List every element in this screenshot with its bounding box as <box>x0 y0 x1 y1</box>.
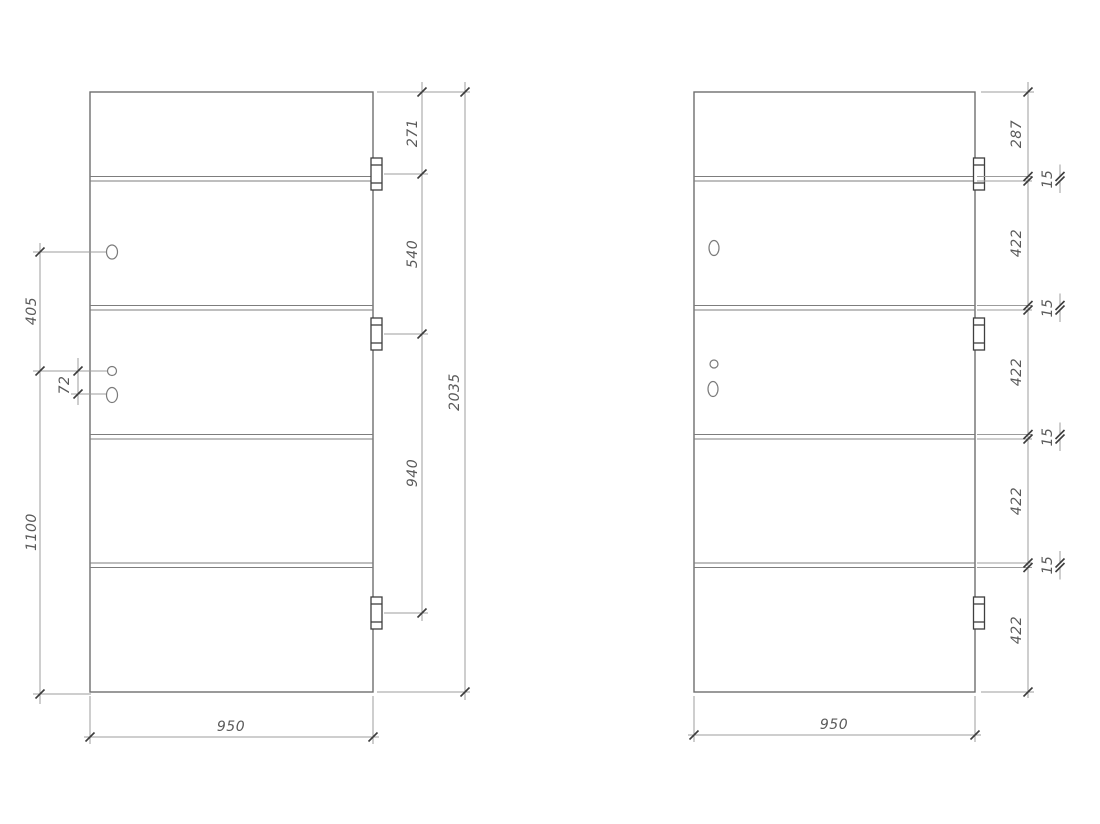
handle-hole-small <box>710 360 718 368</box>
dim-label-950-left: 950 <box>217 719 245 735</box>
dim-label-940: 940 <box>405 459 421 487</box>
hinge-symbol-top <box>974 158 985 190</box>
segment-dimension-chain: 287 15 422 15 422 15 422 15 422 <box>977 82 1065 698</box>
dim-label-271: 271 <box>405 119 421 147</box>
dim-label-15-4: 15 <box>1040 556 1056 575</box>
dim-label-72: 72 <box>57 376 73 395</box>
dim-label-15-3: 15 <box>1040 428 1056 447</box>
hinge-symbol-middle <box>371 318 382 350</box>
hinge-dimension-chain: 271 540 940 <box>377 82 470 621</box>
hinge-symbol-middle <box>974 318 985 350</box>
dim-label-2035: 2035 <box>447 373 463 411</box>
door-panel <box>694 92 975 692</box>
handle-hole-top <box>107 245 118 259</box>
panel-seams <box>694 177 975 568</box>
hole-dimension-chain: 405 72 1100 <box>24 243 107 704</box>
dim-label-1100: 1100 <box>24 513 40 551</box>
dim-label-422-3: 422 <box>1009 487 1025 515</box>
width-dimension-right: 950 <box>688 696 981 742</box>
hinge-symbol-bottom <box>371 597 382 629</box>
dim-label-950-right: 950 <box>820 717 848 733</box>
dim-label-15-1: 15 <box>1040 170 1056 189</box>
handle-hole-bottom <box>107 388 118 403</box>
handle-hole-top <box>709 241 719 256</box>
handle-hole-bottom <box>708 382 718 397</box>
panel-seams <box>90 177 373 568</box>
dim-label-540: 540 <box>405 240 421 268</box>
overall-height-dimension: 2035 <box>377 82 470 700</box>
dim-label-422-2: 422 <box>1009 358 1025 386</box>
dim-label-422-4: 422 <box>1009 616 1025 644</box>
width-dimension-left: 950 <box>84 696 379 744</box>
dim-label-422-1: 422 <box>1009 229 1025 257</box>
door-elevation-left: 405 72 1100 271 540 940 2035 <box>24 82 470 744</box>
handle-hole-small <box>108 367 117 376</box>
hinge-symbol-top <box>371 158 382 190</box>
dim-label-15-2: 15 <box>1040 299 1056 318</box>
gap-outside-arrows <box>1056 165 1065 580</box>
hinge-symbol-bottom <box>974 597 985 629</box>
door-elevation-right: 287 15 422 15 422 15 422 15 422 950 <box>688 82 1065 742</box>
dim-label-405: 405 <box>24 297 40 325</box>
dim-label-287: 287 <box>1009 120 1025 148</box>
technical-drawing-canvas: 405 72 1100 271 540 940 2035 <box>0 0 1100 824</box>
door-panel <box>90 92 373 692</box>
drawing-sheet: 405 72 1100 271 540 940 2035 <box>0 0 1100 824</box>
